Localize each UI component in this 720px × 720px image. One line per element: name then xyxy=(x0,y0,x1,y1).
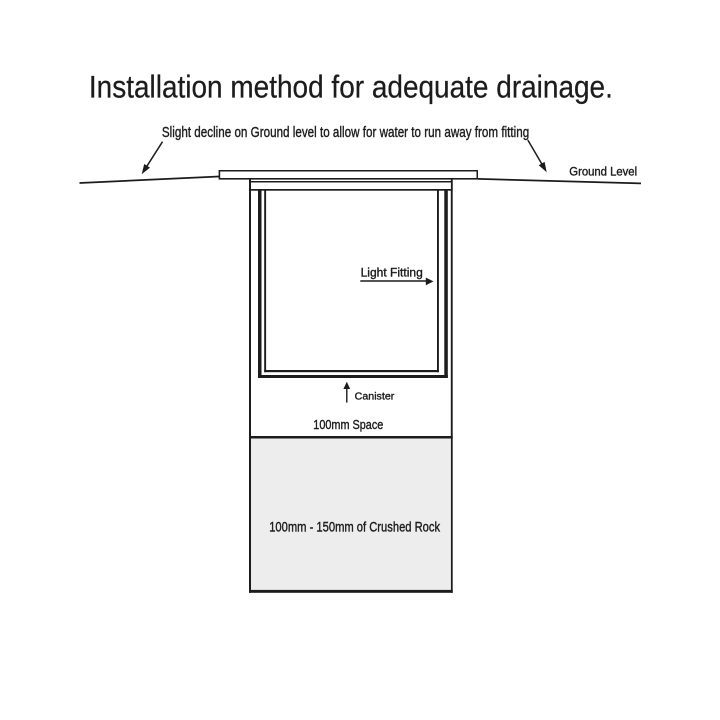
svg-text:Ground Level: Ground Level xyxy=(569,165,637,179)
svg-text:Canister: Canister xyxy=(355,390,395,402)
svg-text:100mm - 150mm of Crushed Rock: 100mm - 150mm of Crushed Rock xyxy=(269,519,441,535)
svg-text:Installation method for adequa: Installation method for adequate drainag… xyxy=(89,69,613,105)
svg-text:Light Fitting: Light Fitting xyxy=(361,265,423,279)
svg-text:Slight decline on Ground level: Slight decline on Ground level to allow … xyxy=(162,124,529,141)
svg-text:100mm Space: 100mm Space xyxy=(313,417,383,432)
